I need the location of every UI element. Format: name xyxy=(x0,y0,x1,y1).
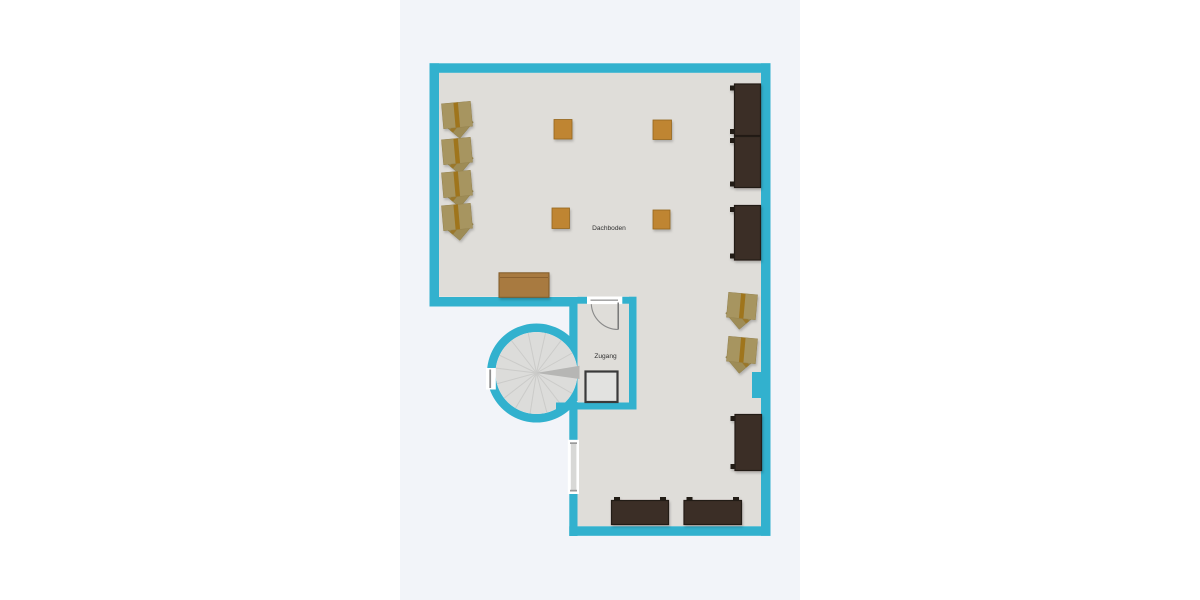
svg-text:Zugang: Zugang xyxy=(594,353,617,360)
svg-text:Dachboden: Dachboden xyxy=(592,225,626,232)
